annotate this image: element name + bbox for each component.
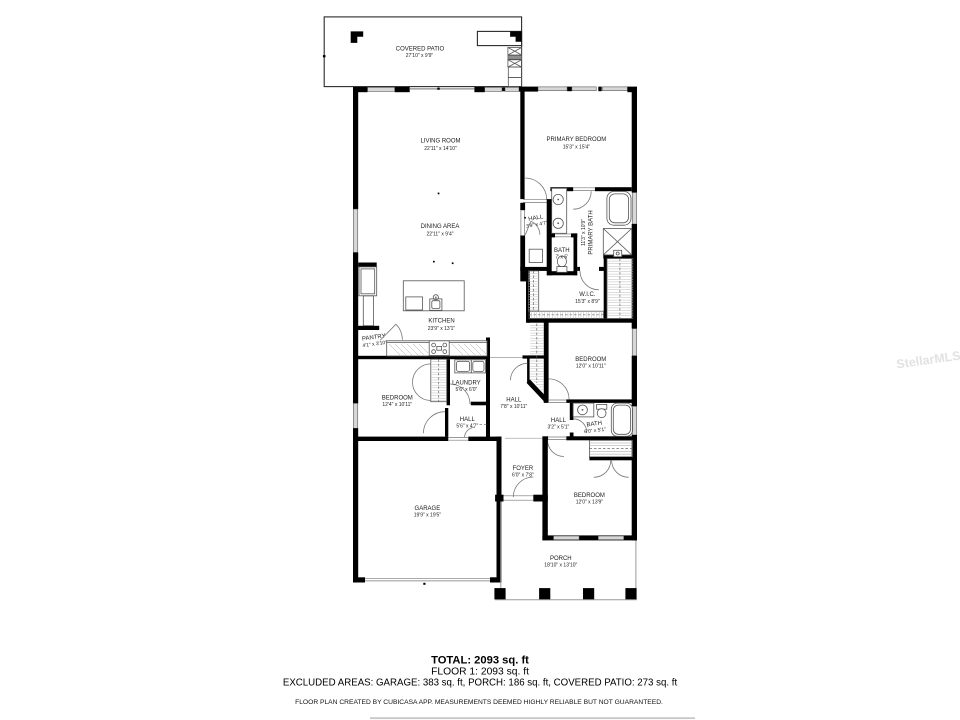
svg-text:12'0" x 10'11": 12'0" x 10'11" (576, 363, 606, 369)
svg-text:HALL: HALL (551, 418, 567, 424)
svg-text:7'8" x 10'11": 7'8" x 10'11" (500, 404, 527, 410)
svg-text:5'6" x 6'0": 5'6" x 6'0" (455, 387, 477, 393)
svg-text:LIVING ROOM: LIVING ROOM (420, 138, 460, 144)
svg-text:22'11" x 14'10": 22'11" x 14'10" (424, 146, 457, 152)
svg-text:15'3" x 8'9": 15'3" x 8'9" (575, 299, 600, 305)
svg-text:HALL: HALL (506, 398, 522, 404)
svg-text:PRIMARY BEDROOM: PRIMARY BEDROOM (547, 137, 607, 143)
svg-text:PORCH: PORCH (550, 556, 572, 562)
svg-text:5'6" x 4'7": 5'6" x 4'7" (456, 423, 478, 429)
svg-text:LAUNDRY: LAUNDRY (452, 381, 481, 387)
svg-text:KITCHEN: KITCHEN (428, 318, 454, 324)
svg-text:18'10" x 13'10": 18'10" x 13'10" (544, 562, 577, 568)
svg-text:3'2" x 5'1": 3'2" x 5'1" (547, 424, 569, 430)
svg-text:FLOOR 1: 2093 sq. ft: FLOOR 1: 2093 sq. ft (431, 666, 529, 677)
svg-text:BEDROOM: BEDROOM (574, 493, 605, 499)
svg-text:27'10" x 9'9": 27'10" x 9'9" (406, 53, 434, 59)
svg-text:DINING AREA: DINING AREA (421, 224, 460, 230)
svg-text:W.I.C.: W.I.C. (579, 292, 596, 298)
svg-text:GARAGE: GARAGE (415, 506, 441, 512)
svg-text:HALL: HALL (460, 417, 476, 423)
svg-text:BEDROOM: BEDROOM (575, 357, 606, 363)
svg-text:12'0" x 13'9": 12'0" x 13'9" (576, 500, 604, 506)
svg-text:12'4" x 10'11": 12'4" x 10'11" (382, 402, 412, 408)
svg-text:BATH: BATH (554, 248, 570, 254)
svg-text:FLOOR PLAN CREATED BY CUBICASA: FLOOR PLAN CREATED BY CUBICASA APP. MEAS… (295, 699, 663, 706)
svg-text:19'9" x 19'5": 19'9" x 19'5" (414, 513, 442, 519)
svg-text:EXCLUDED AREAS: GARAGE: 383 sq: EXCLUDED AREAS: GARAGE: 383 sq. ft, PORC… (283, 678, 678, 689)
svg-text:23'9" x 13'1": 23'9" x 13'1" (428, 326, 456, 332)
svg-text:7' x 5': 7' x 5' (555, 255, 568, 261)
svg-text:BEDROOM: BEDROOM (382, 396, 413, 402)
svg-text:22'11" x 9'4": 22'11" x 9'4" (426, 232, 453, 238)
svg-text:COVERED PATIO: COVERED PATIO (396, 47, 445, 53)
svg-text:TOTAL: 2093 sq. ft: TOTAL: 2093 sq. ft (431, 655, 529, 667)
svg-text:15'3" x 15'4": 15'3" x 15'4" (563, 144, 591, 150)
svg-text:11'3" x 10'9": 11'3" x 10'9" (581, 219, 587, 246)
svg-text:6'0" x 7'8": 6'0" x 7'8" (512, 472, 534, 478)
svg-text:FOYER: FOYER (513, 466, 534, 472)
svg-text:PRIMARY BATH: PRIMARY BATH (589, 210, 595, 254)
